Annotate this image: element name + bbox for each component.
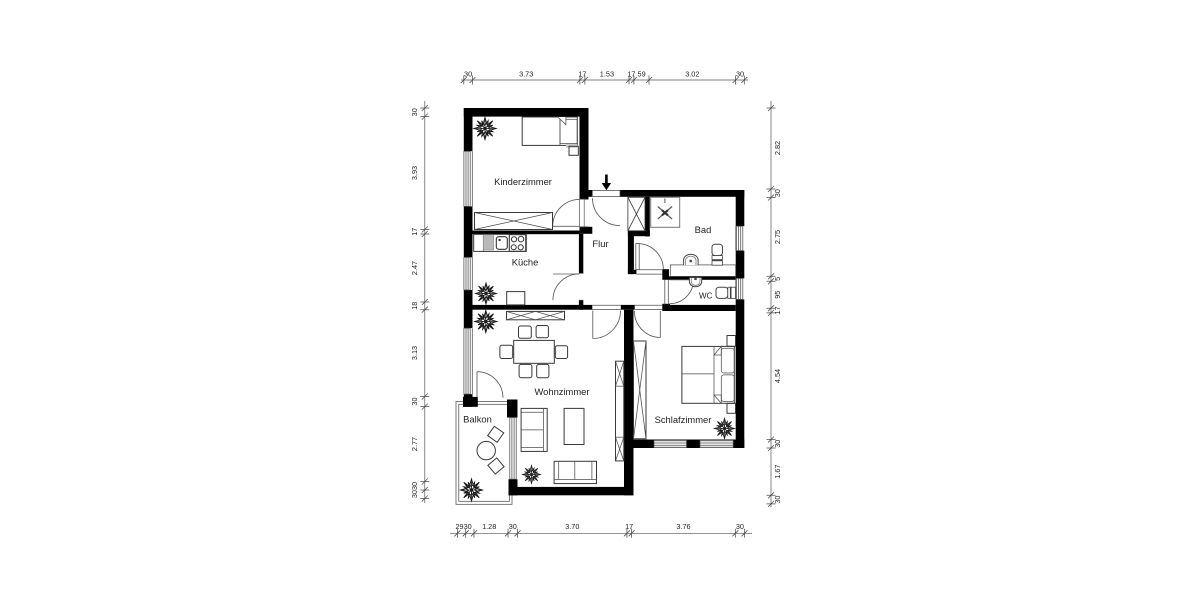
svg-text:Bad: Bad (695, 224, 712, 235)
svg-text:3.70: 3.70 (565, 522, 579, 531)
svg-text:2.47: 2.47 (410, 261, 419, 275)
svg-text:1.28: 1.28 (482, 522, 496, 531)
svg-text:95: 95 (773, 291, 782, 299)
svg-text:17: 17 (410, 228, 419, 236)
svg-text:2.75: 2.75 (773, 230, 782, 244)
svg-text:1.67: 1.67 (773, 464, 782, 478)
svg-text:Flur: Flur (592, 238, 608, 249)
svg-text:30: 30 (773, 496, 782, 504)
svg-text:3.73: 3.73 (519, 69, 533, 78)
svg-text:WC: WC (699, 291, 713, 300)
svg-text:5: 5 (773, 277, 782, 281)
svg-text:Kinderzimmer: Kinderzimmer (494, 176, 552, 187)
svg-text:3030: 3030 (410, 482, 419, 498)
svg-text:30: 30 (464, 69, 472, 78)
svg-text:3.13: 3.13 (410, 346, 419, 360)
svg-text:Schlafzimmer: Schlafzimmer (655, 414, 712, 425)
svg-text:Balkon: Balkon (463, 413, 492, 424)
svg-text:2930: 2930 (455, 522, 471, 531)
svg-text:2.77: 2.77 (410, 437, 419, 451)
svg-text:3.02: 3.02 (685, 69, 699, 78)
svg-text:30: 30 (736, 522, 744, 531)
svg-text:30: 30 (410, 397, 419, 405)
svg-text:1.53: 1.53 (600, 69, 614, 78)
svg-text:30: 30 (773, 440, 782, 448)
svg-text:17: 17 (625, 522, 633, 531)
svg-text:17: 17 (773, 306, 782, 314)
svg-text:Küche: Küche (512, 256, 539, 267)
svg-text:17: 17 (627, 69, 635, 78)
svg-text:30: 30 (509, 522, 517, 531)
svg-text:3.93: 3.93 (410, 166, 419, 180)
svg-text:30: 30 (736, 69, 744, 78)
svg-text:59: 59 (638, 69, 646, 78)
svg-text:30: 30 (773, 189, 782, 197)
svg-text:4.54: 4.54 (773, 369, 782, 383)
svg-text:Wohnzimmer: Wohnzimmer (534, 386, 589, 397)
svg-text:17: 17 (578, 69, 586, 78)
svg-text:30: 30 (410, 108, 419, 116)
svg-text:2.82: 2.82 (773, 141, 782, 155)
svg-text:3.76: 3.76 (676, 522, 690, 531)
svg-text:18: 18 (410, 302, 419, 310)
